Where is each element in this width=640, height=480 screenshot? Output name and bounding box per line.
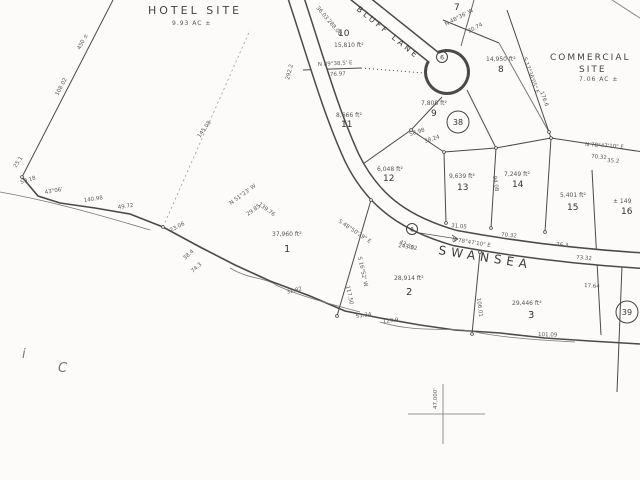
curve-marker-6a: 6	[440, 55, 444, 62]
corner-mark-c: C	[58, 361, 68, 376]
lot-number: 1	[284, 244, 290, 255]
dimension-label: 145.08	[197, 120, 213, 140]
lot-number: 14	[512, 180, 524, 190]
dimension-label: S 17°36'05" E	[521, 57, 540, 95]
dimension-label: 35.2	[607, 158, 620, 165]
lot-area: 28,914 ft²	[394, 275, 424, 282]
hotel-site-label: HOTEL SITE	[148, 4, 242, 17]
lot10-divider-dotted	[361, 68, 424, 73]
lot-number: 3	[528, 310, 534, 321]
plat-map-scan: 47,000' HOTEL SITE 9.93 AC ± COMMERCIAL …	[0, 0, 640, 480]
dimension-label: N 51°23' W	[229, 183, 258, 207]
dimension-label: 288.06	[325, 18, 342, 37]
lot-area: 5,401 ft²	[560, 192, 586, 199]
lot9-east-line	[467, 90, 496, 148]
lot-area: ± 149	[613, 198, 632, 205]
lot-area: 8,666 ft²	[336, 112, 362, 119]
dimension-label: 108.02	[54, 77, 68, 97]
lot-number: 16	[621, 207, 633, 217]
corner-mark-i: i	[22, 347, 26, 362]
dimension-label: 30.74	[467, 22, 484, 35]
lot-number: 9	[431, 109, 437, 119]
shore-echo-left	[0, 192, 150, 230]
dimension-label: 76.97	[330, 71, 347, 78]
lot-number: 12	[383, 174, 394, 184]
lot-area: 6,048 ft²	[377, 166, 403, 173]
commercial-site-acreage: 7.06 AC ±	[579, 76, 618, 83]
topright-corner-line	[612, 0, 640, 20]
lot-number: 15	[567, 203, 578, 213]
dimension-label: 129.9	[383, 317, 400, 325]
dimension-label: 140.98	[83, 195, 103, 204]
lot2-lot3-divider	[472, 252, 480, 334]
dimension-label: 117.50	[344, 285, 354, 306]
dimension-label: N 89°38.5' E	[318, 60, 353, 68]
commercial-site-label-line2: SITE	[579, 65, 607, 75]
dimension-label: 38.4	[182, 248, 195, 261]
dimension-label: 106.01	[475, 298, 483, 318]
lot3-right-divider	[617, 266, 622, 392]
lot-area: 29,446 ft²	[512, 300, 542, 307]
dimension-label: S 48°50'29" E	[337, 219, 373, 246]
lot14-lot15-divider	[545, 138, 551, 232]
curve-marker-6b: 6	[410, 227, 414, 234]
dimension-label: 74.3	[190, 261, 203, 274]
lot11-lot12-divider	[363, 130, 411, 164]
lot-area: 7,808 ft²	[421, 100, 447, 107]
lot7-left-line	[461, 0, 474, 46]
dimension-label: 76.3	[556, 242, 569, 249]
lot-number: 7	[454, 3, 460, 13]
hotel-site-acreage: 9.93 AC ±	[172, 20, 211, 27]
grid-coordinate-label: 47,000'	[433, 388, 439, 409]
lot-area: 7,249 ft²	[504, 171, 530, 178]
dimension-label: 292.2	[285, 64, 295, 81]
dimension-label: 36.03	[314, 5, 329, 21]
dimension-label: 73.32	[576, 255, 592, 262]
dimension-label: 49.72	[117, 203, 133, 211]
dimension-label: 43°06'	[44, 187, 63, 196]
lot-number: 8	[498, 65, 504, 75]
dimension-label: 70.32	[591, 154, 607, 161]
dimension-label: 23.06	[169, 221, 186, 234]
curve-marker-38: 38	[453, 118, 463, 127]
lot-area: 37,960 ft²	[272, 231, 302, 238]
lot-number: 13	[457, 183, 468, 193]
dimension-label: 25.1	[13, 156, 25, 169]
lot-number: 2	[406, 287, 412, 298]
dimension-label: 38.24	[424, 134, 441, 145]
dimension-label: 139.76	[257, 202, 277, 218]
lot-number: 11	[341, 120, 352, 130]
dimension-label: 17.64	[584, 283, 601, 290]
grid-crosshair	[408, 384, 485, 444]
dimension-label: S 16°52' W	[356, 256, 368, 288]
plat-map-canvas: 47,000' HOTEL SITE 9.93 AC ± COMMERCIAL …	[0, 0, 640, 480]
lot-area: 9,639 ft²	[449, 173, 475, 180]
dimension-label: 51.34	[355, 312, 372, 320]
lot-area: 15,810 ft²	[334, 42, 364, 49]
lot1-lot2-divider	[337, 200, 371, 316]
commercial-site-label-line1: COMMERCIAL	[550, 53, 631, 63]
dimension-label: 94.08	[491, 175, 499, 192]
lot-area: 14,950 ft²	[486, 56, 516, 63]
curve-marker-39: 39	[622, 308, 632, 317]
dimension-label: N 78°47'10" E	[585, 142, 625, 151]
left-boundary-line	[22, 0, 113, 177]
lot12-lot13-divider	[444, 152, 446, 223]
dimension-label: 101.09	[538, 332, 558, 339]
